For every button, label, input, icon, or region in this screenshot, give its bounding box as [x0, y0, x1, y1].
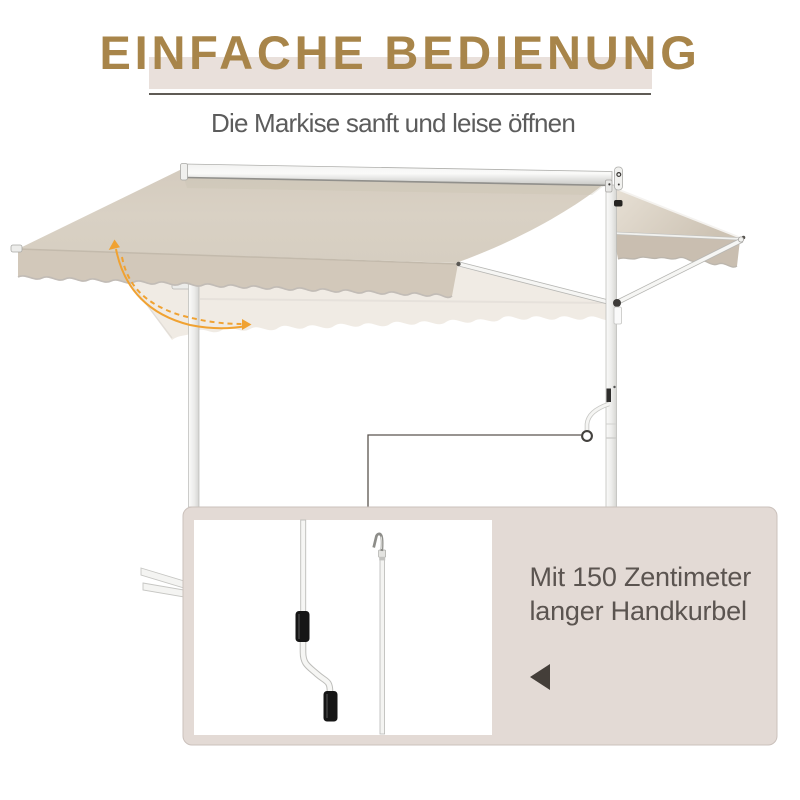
svg-text:langer Handkurbel: langer Handkurbel — [530, 596, 747, 626]
svg-text:EINFACHE BEDIENUNG: EINFACHE BEDIENUNG — [99, 26, 700, 79]
svg-text:Mit 150 Zentimeter: Mit 150 Zentimeter — [530, 562, 752, 592]
svg-text:Die Markise sanft und leise öf: Die Markise sanft und leise öffnen — [211, 108, 575, 138]
